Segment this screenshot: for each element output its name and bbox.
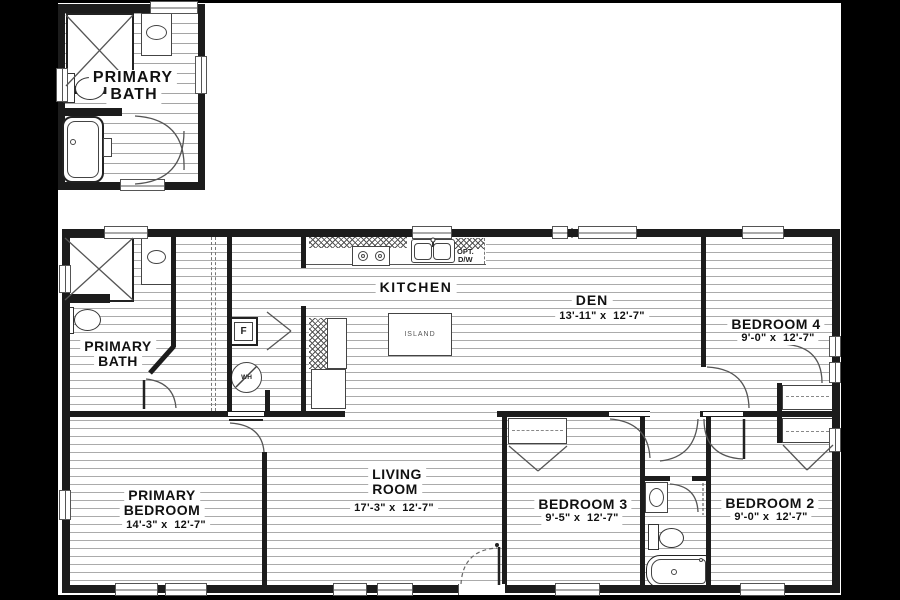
wall bbox=[701, 229, 706, 367]
closet-shelf-line bbox=[786, 396, 829, 397]
wall bbox=[265, 390, 270, 411]
inset-bath-label: BATH bbox=[106, 87, 161, 104]
window bbox=[829, 336, 841, 357]
water-heater: WH bbox=[231, 362, 262, 393]
burner-dot bbox=[361, 254, 365, 258]
window bbox=[742, 226, 784, 239]
wall bbox=[58, 108, 122, 116]
room-label-living-room: ROOM bbox=[368, 482, 422, 497]
wall bbox=[640, 476, 670, 481]
burner-dot bbox=[378, 254, 382, 258]
pantry-counter bbox=[309, 318, 327, 369]
door-opening bbox=[703, 412, 743, 416]
room-dims-den: 13'-11" x 12'-7" bbox=[555, 311, 649, 323]
bathtub-inner bbox=[67, 121, 99, 178]
window bbox=[195, 56, 207, 94]
wall bbox=[198, 4, 205, 190]
sink-basin bbox=[433, 243, 451, 260]
tub-drain bbox=[70, 139, 76, 145]
wall bbox=[69, 411, 345, 417]
counter-edge-dashed bbox=[484, 238, 485, 264]
window bbox=[104, 226, 148, 239]
wall bbox=[301, 306, 306, 411]
tub-drain bbox=[671, 569, 677, 575]
kitchen-island: ISLAND bbox=[388, 313, 452, 356]
room-dims-primary-bedroom: 14'-3" x 12'-7" bbox=[122, 520, 210, 532]
furnace-inner: F bbox=[234, 322, 253, 341]
room-dims-living-room: 17'-3" x 12'-7" bbox=[350, 503, 438, 515]
room-label-primary-bath: PRIMARY bbox=[80, 339, 156, 354]
room-label-den: DEN bbox=[572, 293, 613, 308]
window bbox=[412, 226, 452, 239]
closet bbox=[782, 385, 833, 410]
tub-faucet bbox=[699, 558, 703, 562]
window bbox=[56, 68, 68, 102]
window bbox=[59, 490, 71, 520]
wall bbox=[301, 229, 306, 268]
front-door-opening bbox=[458, 584, 505, 595]
furnace-label: F bbox=[240, 326, 246, 337]
opt-dw-label: D/W bbox=[458, 255, 473, 264]
bathtub-inner bbox=[651, 559, 706, 584]
sink bbox=[649, 488, 664, 507]
marriage-line bbox=[215, 237, 216, 411]
room-label-primary-bedroom: PRIMARY bbox=[124, 488, 200, 503]
sink bbox=[146, 25, 167, 40]
wall bbox=[706, 417, 711, 593]
room-label-bedroom-3: BEDROOM 3 bbox=[534, 497, 631, 512]
window bbox=[115, 583, 158, 596]
window bbox=[829, 428, 841, 452]
window bbox=[555, 583, 600, 596]
water-heater-label: WH bbox=[241, 374, 252, 381]
island-label: ISLAND bbox=[404, 331, 435, 338]
wall bbox=[502, 411, 507, 593]
wall-exterior bbox=[832, 237, 840, 585]
inset-bath-label: PRIMARY bbox=[89, 70, 177, 87]
room-label-living-room: LIVING bbox=[368, 467, 426, 482]
closet-shelf-line bbox=[512, 430, 563, 431]
window bbox=[552, 226, 568, 239]
closet-shelf-line bbox=[786, 431, 829, 432]
room-label-bedroom-2: BEDROOM 2 bbox=[721, 496, 818, 511]
shower bbox=[64, 236, 134, 302]
room-label-kitchen: KITCHEN bbox=[376, 280, 457, 295]
floorplan-page: { "colors": { "canvas_bg": "#000000", "p… bbox=[0, 0, 900, 600]
room-dims-bedroom-2: 9'-0" x 12'-7" bbox=[730, 512, 811, 524]
pantry-cabinet bbox=[311, 369, 346, 409]
window bbox=[59, 265, 71, 293]
wall bbox=[171, 229, 176, 347]
window bbox=[740, 583, 785, 596]
wall bbox=[62, 294, 110, 303]
window bbox=[165, 583, 207, 596]
toilet-bowl bbox=[74, 309, 101, 331]
marriage-line bbox=[211, 237, 212, 411]
window bbox=[578, 226, 637, 239]
pantry-cabinet bbox=[327, 318, 347, 369]
room-label-primary-bedroom: BEDROOM bbox=[120, 503, 205, 518]
window bbox=[377, 583, 413, 596]
window bbox=[829, 362, 841, 383]
window bbox=[150, 1, 198, 14]
tub-step bbox=[103, 138, 112, 157]
room-label-bedroom-4: BEDROOM 4 bbox=[727, 317, 824, 332]
sink bbox=[147, 250, 166, 264]
room-label-primary-bath: BATH bbox=[94, 354, 142, 369]
wall bbox=[692, 476, 706, 481]
window bbox=[120, 179, 165, 191]
sink-basin bbox=[414, 243, 432, 260]
wall bbox=[227, 229, 232, 411]
door-opening bbox=[228, 412, 264, 416]
wall bbox=[777, 383, 782, 443]
window bbox=[333, 583, 367, 596]
door-opening bbox=[609, 412, 650, 416]
toilet-tank bbox=[648, 524, 659, 550]
wall bbox=[640, 417, 645, 593]
wall bbox=[262, 452, 267, 593]
toilet-bowl bbox=[659, 528, 684, 548]
closet bbox=[508, 418, 567, 444]
room-dims-bedroom-4: 9'-0" x 12'-7" bbox=[737, 333, 818, 345]
room-dims-bedroom-3: 9'-5" x 12'-7" bbox=[541, 513, 622, 525]
